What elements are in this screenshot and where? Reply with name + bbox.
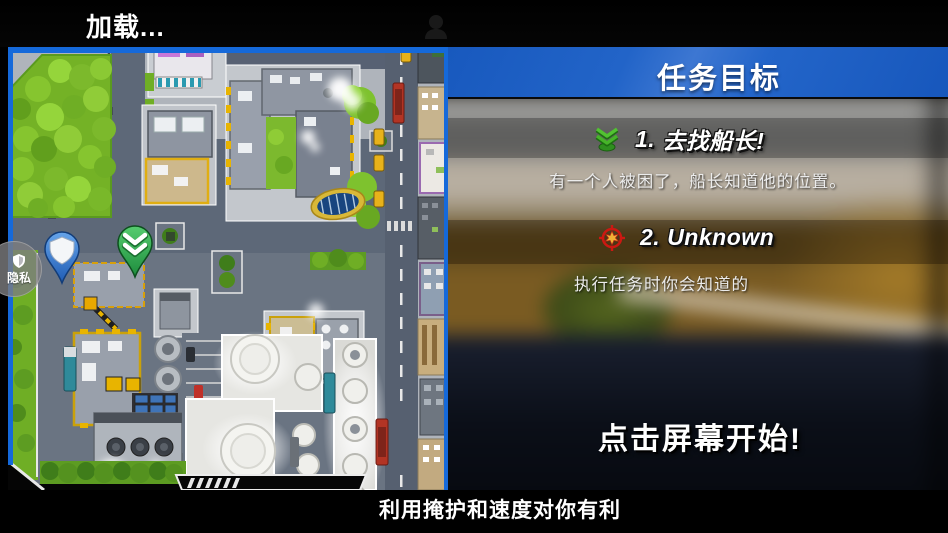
objective-2-title: Unknown <box>667 224 774 251</box>
top-bar: 加载... <box>0 0 948 47</box>
objective-2: 2. Unknown <box>598 224 774 251</box>
start-prompt[interactable]: 点击屏幕开始! <box>598 414 802 458</box>
objective-1: 1. 去找船长! <box>593 122 764 156</box>
objective-2-description: 执行任务时你会知道的 <box>574 271 749 295</box>
objective-2-number: 2. <box>640 224 660 251</box>
loading-label: 加载... <box>86 7 165 44</box>
mission-panel: 任务目标 1. 去找船长! 有一个人被困了，船长知道他的位置。 <box>448 47 948 533</box>
objective-1-number: 1. <box>635 126 655 153</box>
mission-panel-header: 任务目标 <box>448 47 948 99</box>
profile-icon <box>424 13 448 39</box>
minimap <box>8 47 448 490</box>
shield-icon <box>11 253 27 269</box>
green-chevrons-icon <box>593 126 621 152</box>
minimap-city-art <box>8 47 448 490</box>
footer-tip-bar: 利用掩护和速度对你有利 <box>0 490 948 533</box>
footer-tip: 利用掩护和速度对你有利 <box>26 494 948 524</box>
loading-screen[interactable]: 加载... <box>0 0 948 533</box>
red-crosshair-icon <box>598 225 626 251</box>
mission-panel-title: 任务目标 <box>448 55 948 97</box>
objective-1-description: 有一个人被困了，船长知道他的位置。 <box>448 168 948 192</box>
objective-1-title: 去找船长! <box>662 122 764 156</box>
privacy-label: 隐私 <box>7 269 31 286</box>
